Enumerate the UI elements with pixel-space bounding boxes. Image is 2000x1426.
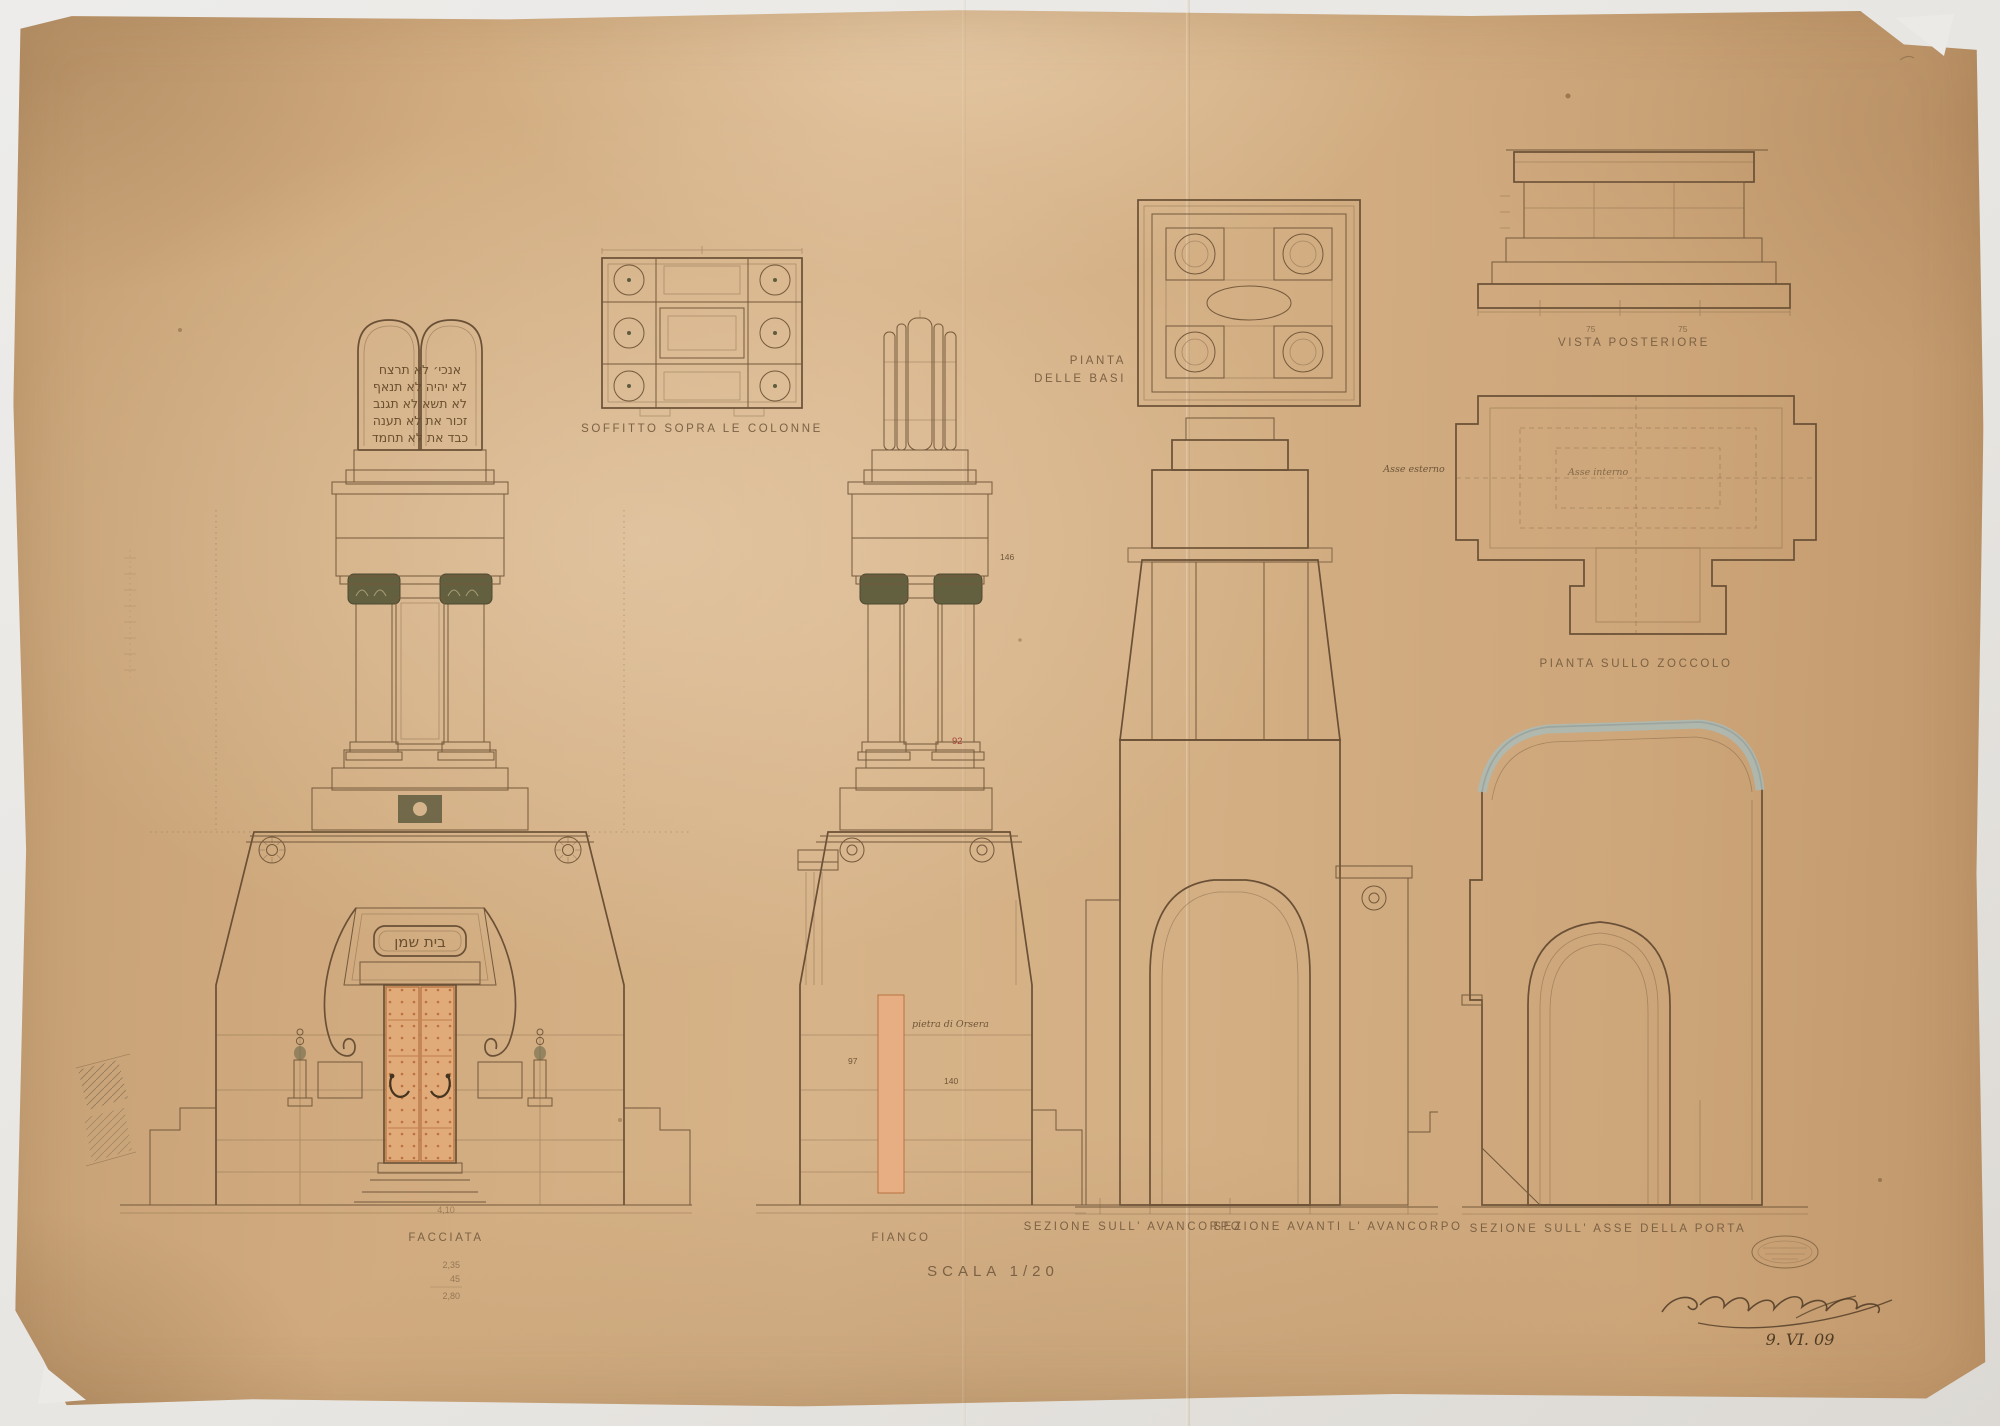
left-pier <box>1086 900 1120 1205</box>
center-base-oval <box>1207 286 1291 320</box>
right-wing-step <box>624 1108 690 1205</box>
material-note: pietra di Orsera <box>912 1019 989 1030</box>
label-sezione-asse-porta: SEZIONE SULL' ASSE DELLA PORTA <box>1470 1223 1747 1235</box>
label-soffitto: SOFFITTO SOPRA LE COLONNE <box>581 423 823 435</box>
label-scale: SCALA 1/20 <box>927 1263 1059 1280</box>
pencil-number: 2,35 <box>442 1260 460 1270</box>
torn-corner-top-right <box>1896 14 1954 56</box>
view-pianta-zoccolo: Asse esterno Asse interno PIANTA SULLO Z… <box>1382 396 1816 670</box>
view-soffitto: SOFFITTO SOPRA LE COLONNE <box>581 246 823 435</box>
pierced-bronze-panel <box>396 598 444 744</box>
note-asse-esterno: Asse esterno <box>1382 464 1445 475</box>
dimension-140: 140 <box>944 1076 958 1086</box>
tablet-inscription-line: לא תשא לא תגנב <box>373 396 467 411</box>
dimension-146: 146 <box>1000 552 1014 562</box>
view-pianta-basi: PIANTA DELLE BASI <box>1034 200 1360 406</box>
pierced-bronze-panel <box>904 598 938 744</box>
rosette <box>1362 886 1386 910</box>
oval-stamp <box>1752 1236 1818 1268</box>
view-facciata: אנכי׳ לא תרצח לא יהיה לא תנאף לא תשא לא … <box>120 320 692 1301</box>
pencil-hatch-sketch <box>76 1054 136 1166</box>
architect-signature <box>1662 1296 1892 1328</box>
tablet-inscription-line: אנכי׳ לא תרצח <box>379 362 461 377</box>
column-right <box>438 574 494 760</box>
view-vista-posteriore: 75 75 VISTA POSTERIORE <box>1478 150 1790 349</box>
pencil-number: 2,80 <box>442 1291 460 1301</box>
tablet-inscription-line: זכור את לא תענה <box>373 413 468 428</box>
label-pianta-basi-2: DELLE BASI <box>1034 373 1126 385</box>
top-block-section <box>1152 470 1308 548</box>
rosette-left <box>259 837 285 863</box>
arched-niche <box>1528 922 1670 1205</box>
pencil-mark <box>1900 56 1914 60</box>
margin-ruler <box>124 550 136 678</box>
right-pier <box>1340 878 1408 1205</box>
architectural-drawing: אנכי׳ לא תרצח לא יהיה לא תנאף לא תשא לא … <box>0 0 2000 1426</box>
label-sezione-avancorpo: SEZIONE SULL' AVANCORPO <box>1024 1221 1243 1233</box>
signature-date: 9. VI. 09 <box>1766 1330 1835 1349</box>
capital-right <box>440 574 492 604</box>
volute-right <box>484 908 516 1056</box>
column-left <box>346 574 402 760</box>
tablet-inscription-line: כבד את לא תחמד <box>372 430 468 445</box>
stone-strip-pietra-orsera <box>878 995 904 1193</box>
column-base-circles <box>1175 234 1323 372</box>
column-shaft-section <box>1264 562 1308 740</box>
blue-wash-cornice <box>1482 724 1760 792</box>
pencil-calculation: 2,35 45 2,80 <box>430 1260 462 1301</box>
label-pianta-basi-1: PIANTA <box>1070 355 1126 367</box>
entablature <box>848 482 992 584</box>
capital-left <box>348 574 400 604</box>
arched-void <box>1150 880 1310 1205</box>
entablature <box>332 482 508 584</box>
left-wing-step <box>150 1108 216 1205</box>
dimension-75: 75 <box>1586 324 1596 334</box>
door-lintel-inscription: בית שמן <box>394 933 446 951</box>
label-sezione-avanti-avancorpo: SEZIONE AVANTI L' AVANCORPO <box>1213 1221 1462 1233</box>
note-asse-interno: Asse interno <box>1567 467 1629 478</box>
aedicula-base <box>332 768 508 790</box>
dimension-92-red: 92 <box>952 736 963 747</box>
photographed-drawing-sheet: אנכי׳ לא תרצח לא יהיה לא תנאף לא תשא לא … <box>0 0 2000 1426</box>
rosette-right <box>555 837 581 863</box>
core-section <box>1196 562 1264 740</box>
paper-blemishes <box>38 14 1954 1404</box>
label-fianco: FIANCO <box>871 1232 930 1244</box>
volute-left <box>324 908 356 1056</box>
column-back <box>932 574 984 760</box>
tablet-inscription-line: לא יהיה לא תנאף <box>373 379 467 394</box>
ornament-frieze <box>840 788 992 830</box>
worn-corner-bottom-left <box>38 1366 86 1404</box>
tablet-pedestal <box>354 450 486 482</box>
ceiling-rosette-circles <box>614 265 790 401</box>
shoulder-mass <box>1120 560 1340 740</box>
section-mass <box>1470 722 1762 1205</box>
pencil-number: 45 <box>450 1274 460 1284</box>
body-section <box>1120 740 1340 1205</box>
pencil-overall-width: 4,10 <box>437 1205 455 1215</box>
dimension-75: 75 <box>1678 324 1688 334</box>
column-shaft-section <box>1152 562 1196 740</box>
hatched-foundation <box>1482 1148 1540 1205</box>
label-vista-posteriore: VISTA POSTERIORE <box>1558 337 1710 349</box>
tablets-edge-view <box>884 310 956 450</box>
view-sezione-avancorpo: SEZIONE SULL' AVANCORPO SEZIONE AVANTI L… <box>1024 418 1463 1233</box>
column-front <box>858 574 910 760</box>
view-sezione-asse-porta: SEZIONE SULL' ASSE DELLA PORTA <box>1462 722 1808 1235</box>
portal: בית שמן <box>344 908 496 1202</box>
label-facciata: FACCIATA <box>408 1232 483 1244</box>
dimension-97: 97 <box>848 1056 858 1066</box>
view-fianco: pietra di Orsera <box>756 310 1086 1244</box>
label-pianta-zoccolo: PIANTA SULLO ZOCCOLO <box>1539 658 1732 670</box>
decalogue-tablets: אנכי׳ לא תרצח לא יהיה לא תנאף לא תשא לא … <box>358 320 482 450</box>
